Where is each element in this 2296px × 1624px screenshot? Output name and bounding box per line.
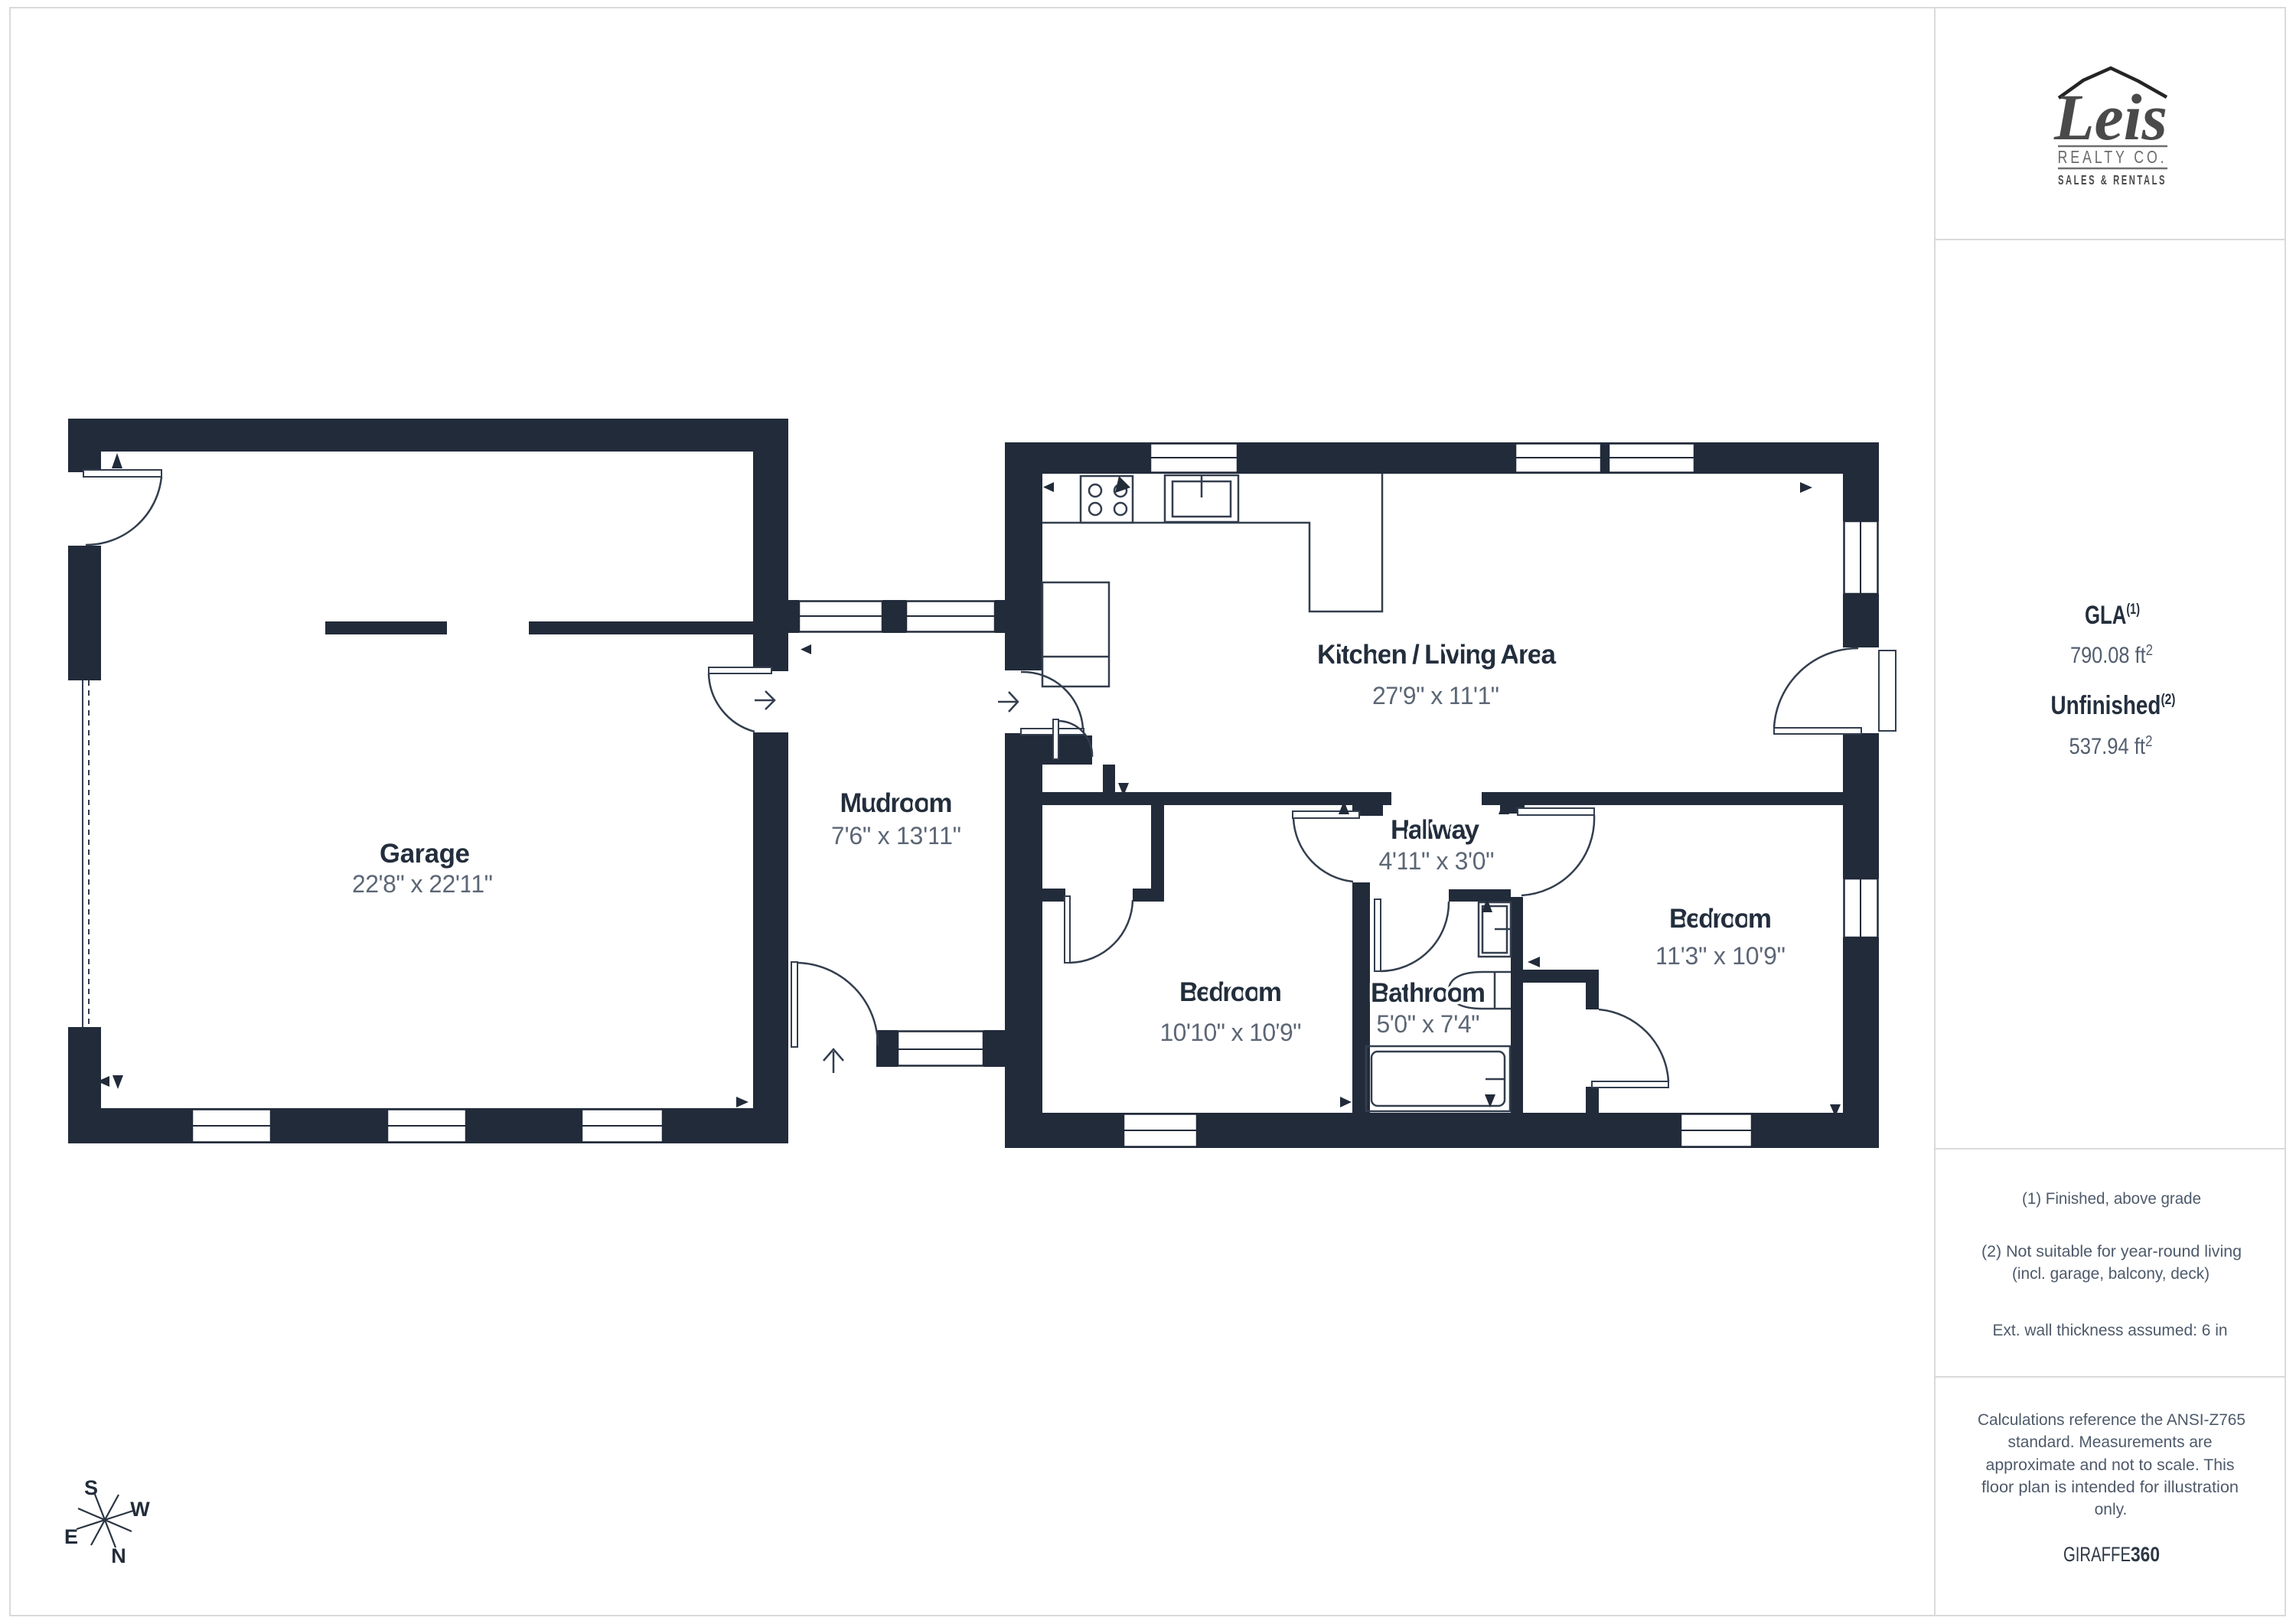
svg-text:360: 360	[2131, 1543, 2160, 1566]
svg-text:Garage: Garage	[380, 839, 470, 869]
svg-text:4'11" x 3'0": 4'11" x 3'0"	[1379, 847, 1495, 875]
svg-text:W: W	[130, 1498, 150, 1521]
svg-text:GIRAFFE: GIRAFFE	[2063, 1543, 2131, 1566]
svg-text:11'3" x 10'9": 11'3" x 10'9"	[1655, 942, 1786, 970]
svg-text:5'0" x 7'4": 5'0" x 7'4"	[1377, 1010, 1480, 1038]
svg-text:537.94 ft2: 537.94 ft2	[2069, 733, 2153, 759]
svg-text:Unfinished(2): Unfinished(2)	[2051, 691, 2176, 720]
svg-text:REALTY CO.: REALTY CO.	[2058, 147, 2167, 167]
svg-text:(1) Finished, above grade: (1) Finished, above grade	[2022, 1190, 2201, 1208]
svg-text:Mudroom: Mudroom	[840, 788, 953, 818]
svg-text:27'9" x 11'1": 27'9" x 11'1"	[1372, 682, 1499, 709]
svg-text:only.: only.	[2095, 1501, 2128, 1518]
svg-text:(2) Not suitable for year-roun: (2) Not suitable for year-round living	[1981, 1243, 2242, 1260]
svg-text:Calculations reference the ANS: Calculations reference the ANSI-Z765	[1978, 1411, 2245, 1429]
svg-text:S: S	[84, 1476, 98, 1499]
svg-text:floor plan is intended for ill: floor plan is intended for illustration	[1981, 1479, 2239, 1496]
svg-text:790.08 ft2: 790.08 ft2	[2070, 642, 2153, 668]
svg-text:SALES & RENTALS: SALES & RENTALS	[2058, 172, 2167, 188]
svg-text:E: E	[64, 1525, 78, 1548]
svg-text:Leis: Leis	[2053, 80, 2167, 154]
svg-text:standard. Measurements are: standard. Measurements are	[2008, 1433, 2213, 1451]
svg-text:approximate and not to scale.: approximate and not to scale. This	[1986, 1456, 2235, 1474]
svg-text:(incl. garage, balcony, deck): (incl. garage, balcony, deck)	[2012, 1265, 2210, 1283]
svg-text:Ext. wall thickness assumed: 6: Ext. wall thickness assumed: 6 in	[1993, 1322, 2228, 1339]
svg-text:Bedroom: Bedroom	[1669, 904, 1772, 934]
svg-text:N: N	[111, 1544, 126, 1567]
svg-text:Kitchen / Living Area: Kitchen / Living Area	[1317, 640, 1557, 670]
svg-text:GLA(1): GLA(1)	[2085, 601, 2140, 630]
svg-text:Bedroom: Bedroom	[1179, 977, 1282, 1007]
svg-text:Hallway: Hallway	[1391, 815, 1480, 845]
svg-text:22'8" x 22'11": 22'8" x 22'11"	[352, 870, 493, 898]
svg-text:Bathroom: Bathroom	[1371, 978, 1486, 1008]
svg-text:7'6" x 13'11": 7'6" x 13'11"	[831, 822, 961, 850]
svg-text:10'10" x 10'9": 10'10" x 10'9"	[1160, 1019, 1302, 1046]
